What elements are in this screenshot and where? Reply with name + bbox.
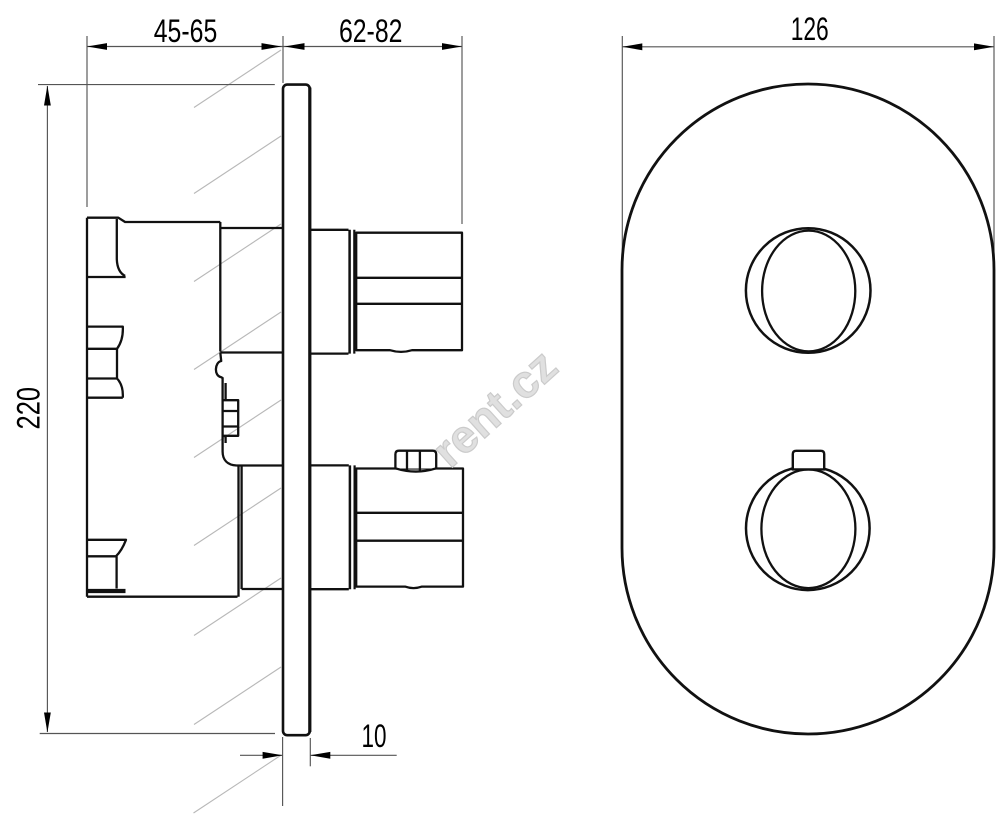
svg-text:126: 126 (791, 11, 829, 47)
svg-text:220: 220 (11, 387, 47, 430)
svg-text:62-82: 62-82 (339, 13, 403, 49)
svg-text:10: 10 (362, 718, 387, 754)
svg-text:45-65: 45-65 (154, 13, 218, 49)
